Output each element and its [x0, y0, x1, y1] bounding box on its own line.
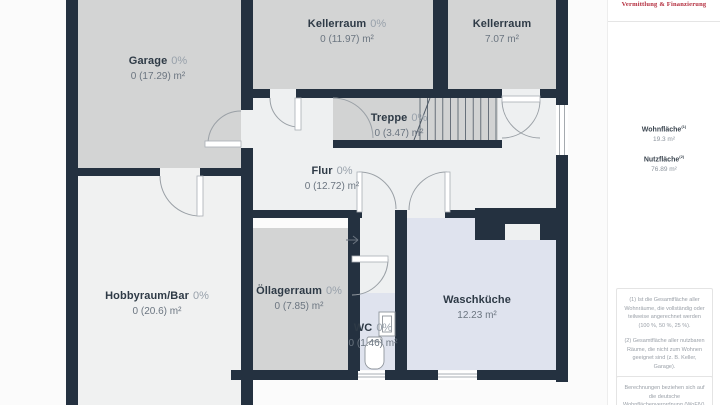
disclaimer-box: Berechnungen beziehen sich auf die deuts…	[616, 376, 713, 405]
room-label-treppe: Treppe0% 0 (3.47) m²	[371, 107, 428, 141]
brand-tagline: Vermittlung & Finanzierung	[608, 1, 720, 8]
room-label-kellerraum2: Kellerraum 7.07 m²	[473, 13, 531, 47]
room-label-wc: WC0% 0 (1.46) m²	[349, 317, 398, 351]
room-garage-fill	[78, 0, 241, 168]
waschkueche-door-slot	[505, 224, 540, 240]
disclaimer-text: Berechnungen beziehen sich auf die deuts…	[622, 384, 707, 405]
footnotes-box: (1) Ist die Gesamtfläche aller Wohnräume…	[616, 288, 713, 379]
floorplan-canvas: Garage0% 0 (17.29) m² Kellerraum0% 0 (11…	[0, 0, 607, 405]
footnote-2: (2) Gesamtfläche aller nutzbaren Räume, …	[622, 337, 707, 371]
room-label-flur: Flur0% 0 (12.72) m²	[305, 160, 359, 194]
wohnflaeche-value: 19.3 m²	[608, 136, 720, 143]
room-label-kellerraum1: Kellerraum0% 0 (11.97) m²	[308, 13, 386, 47]
nutzflaeche-value: 76.89 m²	[608, 166, 720, 173]
corridor-fill	[360, 218, 395, 293]
info-sidebar: Vermittlung & Finanzierung Wohnfläche(1)…	[607, 0, 720, 405]
divider	[608, 21, 720, 22]
room-label-garage: Garage0% 0 (17.29) m²	[129, 50, 187, 84]
footnote-1: (1) Ist die Gesamtfläche aller Wohnräume…	[622, 296, 707, 330]
floorplan-screenshot: Garage0% 0 (17.29) m² Kellerraum0% 0 (11…	[0, 0, 720, 405]
room-label-oellagerraum: Öllagerraum0% 0 (7.85) m²	[256, 280, 342, 314]
metric-wohnflaeche: Wohnfläche(1) 19.3 m²	[608, 124, 720, 143]
metric-nutzflaeche: Nutzfläche(2) 76.89 m²	[608, 154, 720, 173]
room-label-waschkueche: Waschküche 12.23 m²	[443, 289, 511, 323]
room-label-hobbyraum: Hobbyraum/Bar0% 0 (20.6) m²	[105, 285, 209, 319]
